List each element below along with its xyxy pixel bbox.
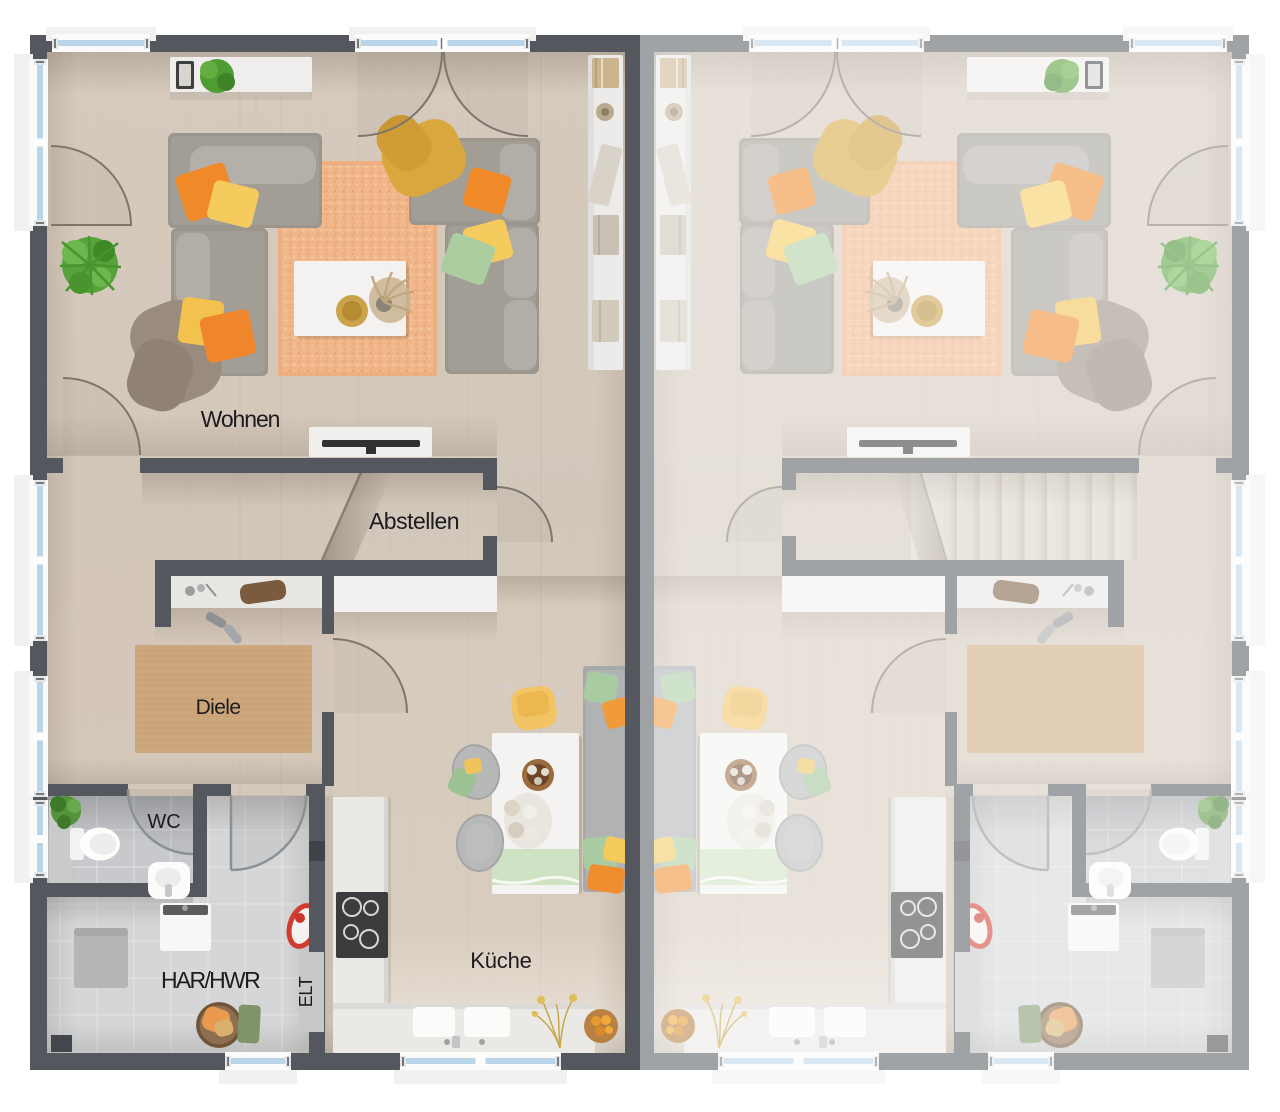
svg-text:Küche: Küche bbox=[470, 948, 531, 973]
svg-text:HAR/HWR: HAR/HWR bbox=[161, 967, 260, 993]
svg-text:Wohnen: Wohnen bbox=[201, 406, 280, 432]
svg-text:Abstellen: Abstellen bbox=[369, 508, 459, 534]
svg-text:Diele: Diele bbox=[196, 696, 241, 719]
svg-text:ELT: ELT bbox=[296, 976, 316, 1007]
svg-text:WC: WC bbox=[147, 811, 180, 833]
